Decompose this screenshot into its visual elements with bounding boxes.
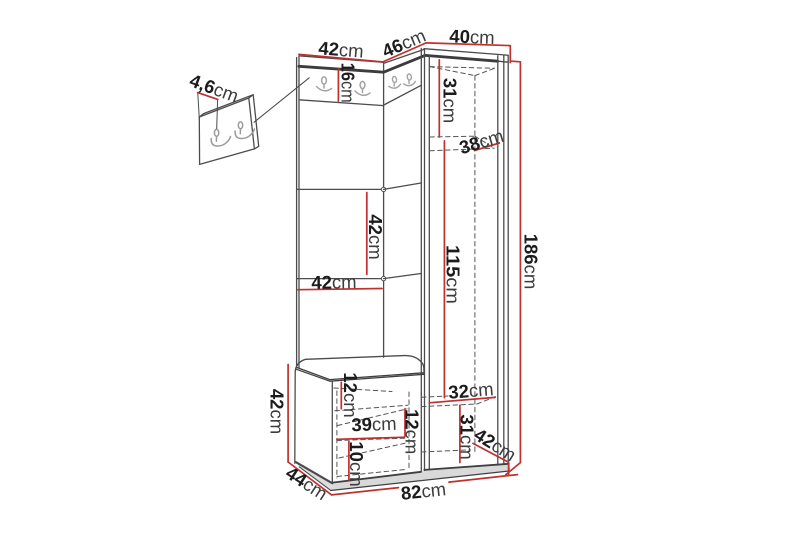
svg-text:4,6cm: 4,6cm xyxy=(187,70,242,107)
svg-text:82cm: 82cm xyxy=(400,478,447,504)
svg-text:42cm: 42cm xyxy=(318,37,365,61)
svg-text:42cm: 42cm xyxy=(311,271,357,293)
svg-text:39cm: 39cm xyxy=(351,413,397,436)
svg-text:42cm: 42cm xyxy=(267,389,288,434)
svg-text:42cm: 42cm xyxy=(365,214,386,259)
svg-text:10cm: 10cm xyxy=(346,441,367,486)
svg-text:12cm: 12cm xyxy=(402,409,423,454)
svg-text:32cm: 32cm xyxy=(448,378,495,402)
svg-text:38cm: 38cm xyxy=(457,125,506,158)
svg-text:16cm: 16cm xyxy=(337,63,358,103)
svg-text:186cm: 186cm xyxy=(521,234,542,290)
svg-text:40cm: 40cm xyxy=(449,25,495,48)
svg-text:115cm: 115cm xyxy=(443,245,464,304)
svg-text:12cm: 12cm xyxy=(340,372,361,417)
svg-text:31cm: 31cm xyxy=(439,78,460,123)
